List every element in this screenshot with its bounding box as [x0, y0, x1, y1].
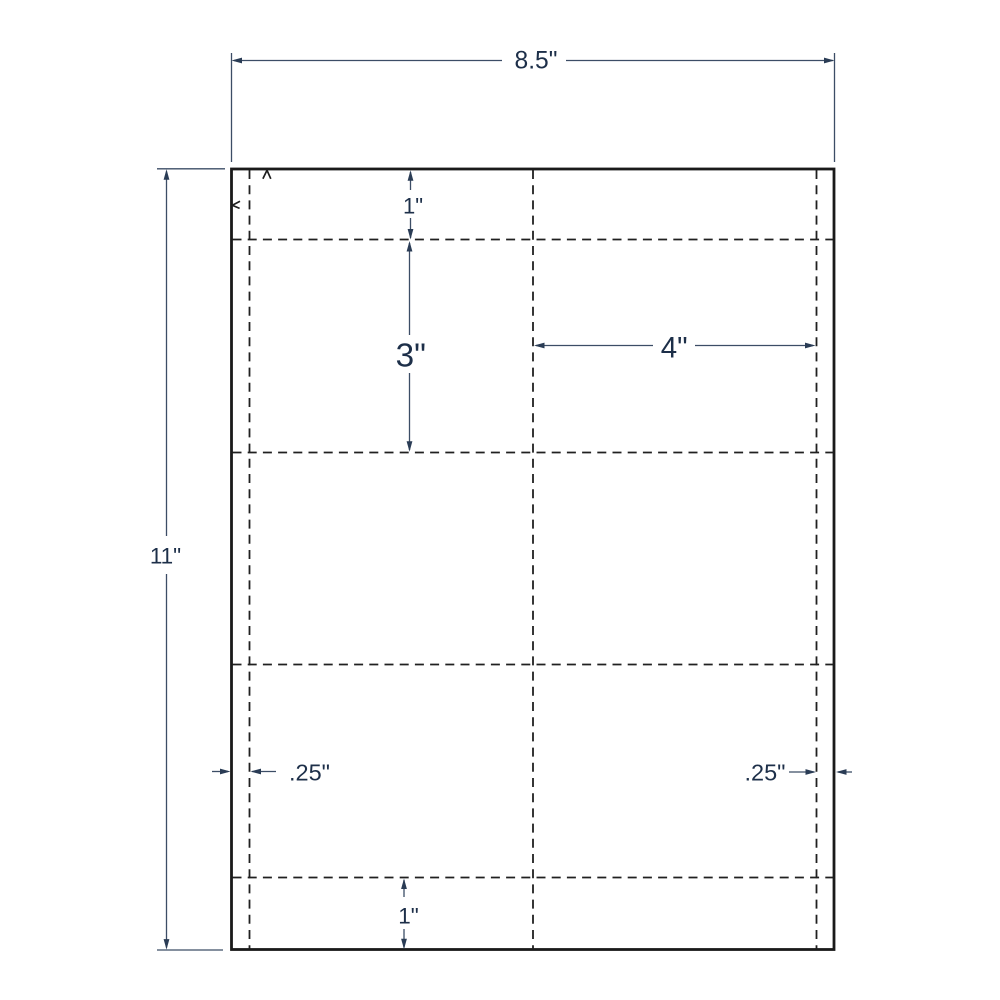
- svg-text:.25": .25": [289, 760, 330, 786]
- svg-text:1": 1": [398, 904, 419, 929]
- svg-text:.25": .25": [744, 760, 785, 786]
- svg-text:3": 3": [396, 337, 426, 374]
- svg-text:1": 1": [403, 193, 423, 218]
- svg-text:8.5": 8.5": [515, 47, 558, 74]
- svg-text:4": 4": [661, 331, 688, 364]
- svg-text:11": 11": [150, 544, 181, 569]
